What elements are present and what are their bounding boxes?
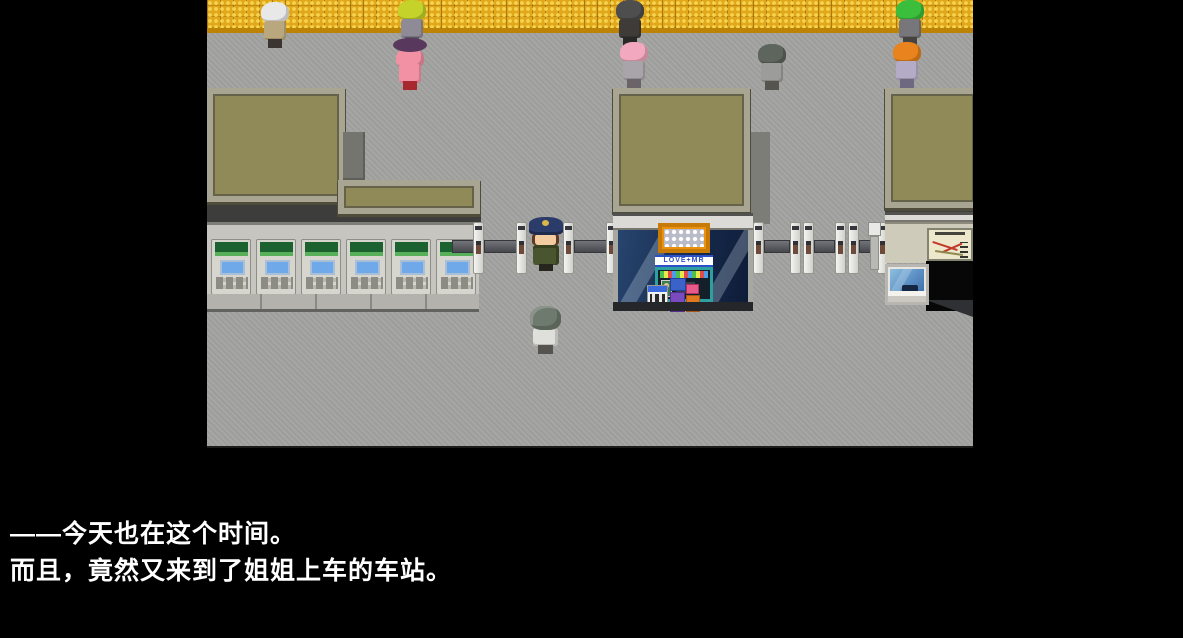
ticket-machine-base [207, 294, 479, 312]
ticket-machine-screen [400, 260, 425, 275]
npc-body [761, 63, 783, 82]
middle-building-roof [613, 88, 750, 212]
ticket-machine-buttons [396, 277, 428, 289]
shelf-products [660, 271, 708, 278]
attendant-feet [539, 264, 553, 271]
npc-white-hair[interactable] [258, 2, 292, 54]
ticket-machine-screen [445, 260, 470, 275]
wall-utility-pillar [870, 236, 879, 270]
attendant-uniform [533, 245, 559, 265]
station-attendant[interactable] [527, 217, 565, 272]
station-office-window [885, 264, 929, 305]
gate-bar [814, 240, 835, 253]
ticket-gate-pillar[interactable] [753, 222, 764, 274]
npc-pink-hair[interactable] [617, 42, 651, 94]
ticket-machine-row [207, 225, 479, 295]
npc-hair [896, 0, 924, 21]
attendant-face [535, 234, 556, 245]
npc-legs [403, 81, 417, 90]
player-jacket [533, 328, 558, 346]
ticket-machine-3[interactable] [301, 239, 341, 295]
ticket-machine-buttons [261, 277, 293, 289]
gate-bar [484, 240, 518, 253]
map-title-text [935, 232, 965, 235]
kiosk-sign-bulbs [664, 229, 704, 247]
office-window-glass [890, 269, 924, 293]
npc-orange-hair[interactable] [890, 42, 924, 94]
npc-hair [893, 42, 921, 63]
ticket-gate-pillar[interactable] [473, 222, 484, 274]
player-hair [530, 306, 561, 330]
office-window-base [888, 296, 926, 302]
ticket-machine-sign [305, 242, 338, 256]
npc-body [401, 19, 423, 38]
npc-body [896, 61, 918, 80]
tactile-paving-strip [207, 0, 973, 33]
ticket-machine-buttons [441, 277, 473, 289]
ticket-machine-sign [260, 242, 293, 256]
ticket-machine-wall [207, 222, 479, 294]
ticket-machine-screen [220, 260, 245, 275]
kiosk-banner: LOVE+MR [655, 255, 713, 267]
ticket-machine-screen [310, 260, 335, 275]
kiosk-base [613, 302, 753, 311]
ticket-gate-pillar[interactable] [835, 222, 846, 274]
gate-bar [574, 240, 608, 253]
npc-hat-lady[interactable] [393, 40, 427, 92]
ticket-machine-screen [355, 260, 380, 275]
ticket-machine-4[interactable] [346, 239, 386, 295]
npc-hair [398, 0, 426, 21]
ticket-gate-pillar[interactable] [803, 222, 814, 274]
right-building-roof [885, 88, 973, 208]
ticket-machine-buttons [306, 277, 338, 289]
npc-body [264, 21, 286, 40]
ticket-machine-screen [265, 260, 290, 275]
ticket-gate-pillar[interactable] [848, 222, 859, 274]
npc-hair [620, 42, 648, 63]
attendant-hat-badge-icon [542, 220, 549, 226]
npc-hair [616, 0, 644, 21]
npc-legs [900, 79, 914, 88]
npc-hair [261, 2, 289, 23]
npc-legs [765, 81, 779, 90]
route-map-board[interactable] [927, 228, 973, 261]
gate-bar [452, 240, 475, 253]
npc-body [899, 19, 921, 38]
wall-utility-box [868, 222, 881, 236]
left-building-roof [207, 88, 345, 202]
ticket-gate-pillar[interactable] [516, 222, 527, 274]
middle-building-side-shadow [750, 132, 770, 224]
ticket-machine-sign [395, 242, 428, 256]
ticket-machine-2[interactable] [256, 239, 296, 295]
ticket-machine-1[interactable] [211, 239, 251, 295]
kiosk-merchandise-blue [670, 278, 686, 291]
map-legend [960, 242, 968, 258]
left-building-roof-annex [338, 180, 480, 214]
dialogue-line-2: 而且，竟然又来到了姐姐上车的车站。 [10, 553, 452, 590]
npc-gray-bob[interactable] [755, 44, 789, 96]
npc-legs [627, 79, 641, 88]
ticket-machine-buttons [351, 277, 383, 289]
right-building-top-band [885, 212, 973, 222]
ticket-machine-buttons [216, 277, 248, 289]
map-route-line [935, 250, 963, 256]
npc-hair [758, 44, 786, 65]
gate-bar [764, 240, 790, 253]
vending-machine-label [648, 286, 667, 292]
npc-hat [393, 38, 427, 52]
ticket-machine-sign [350, 242, 383, 256]
kiosk-light-sign [658, 223, 710, 253]
left-building-vent [343, 132, 365, 180]
ticket-machine-sign [215, 242, 248, 256]
player-legs [538, 345, 553, 354]
dialogue-box[interactable]: ——今天也在这个时间。 而且，竟然又来到了姐姐上车的车站。 [10, 516, 452, 590]
ticket-gate-pillar[interactable] [790, 222, 801, 274]
dialogue-line-1: ——今天也在这个时间。 [10, 516, 452, 553]
npc-body [623, 61, 645, 80]
game-viewport[interactable]: LOVE+MR [207, 0, 973, 448]
npc-legs [268, 39, 282, 48]
player-character[interactable] [528, 306, 564, 356]
npc-body [619, 19, 641, 38]
ticket-machine-5[interactable] [391, 239, 431, 295]
kiosk-merchandise-pink [686, 284, 699, 294]
